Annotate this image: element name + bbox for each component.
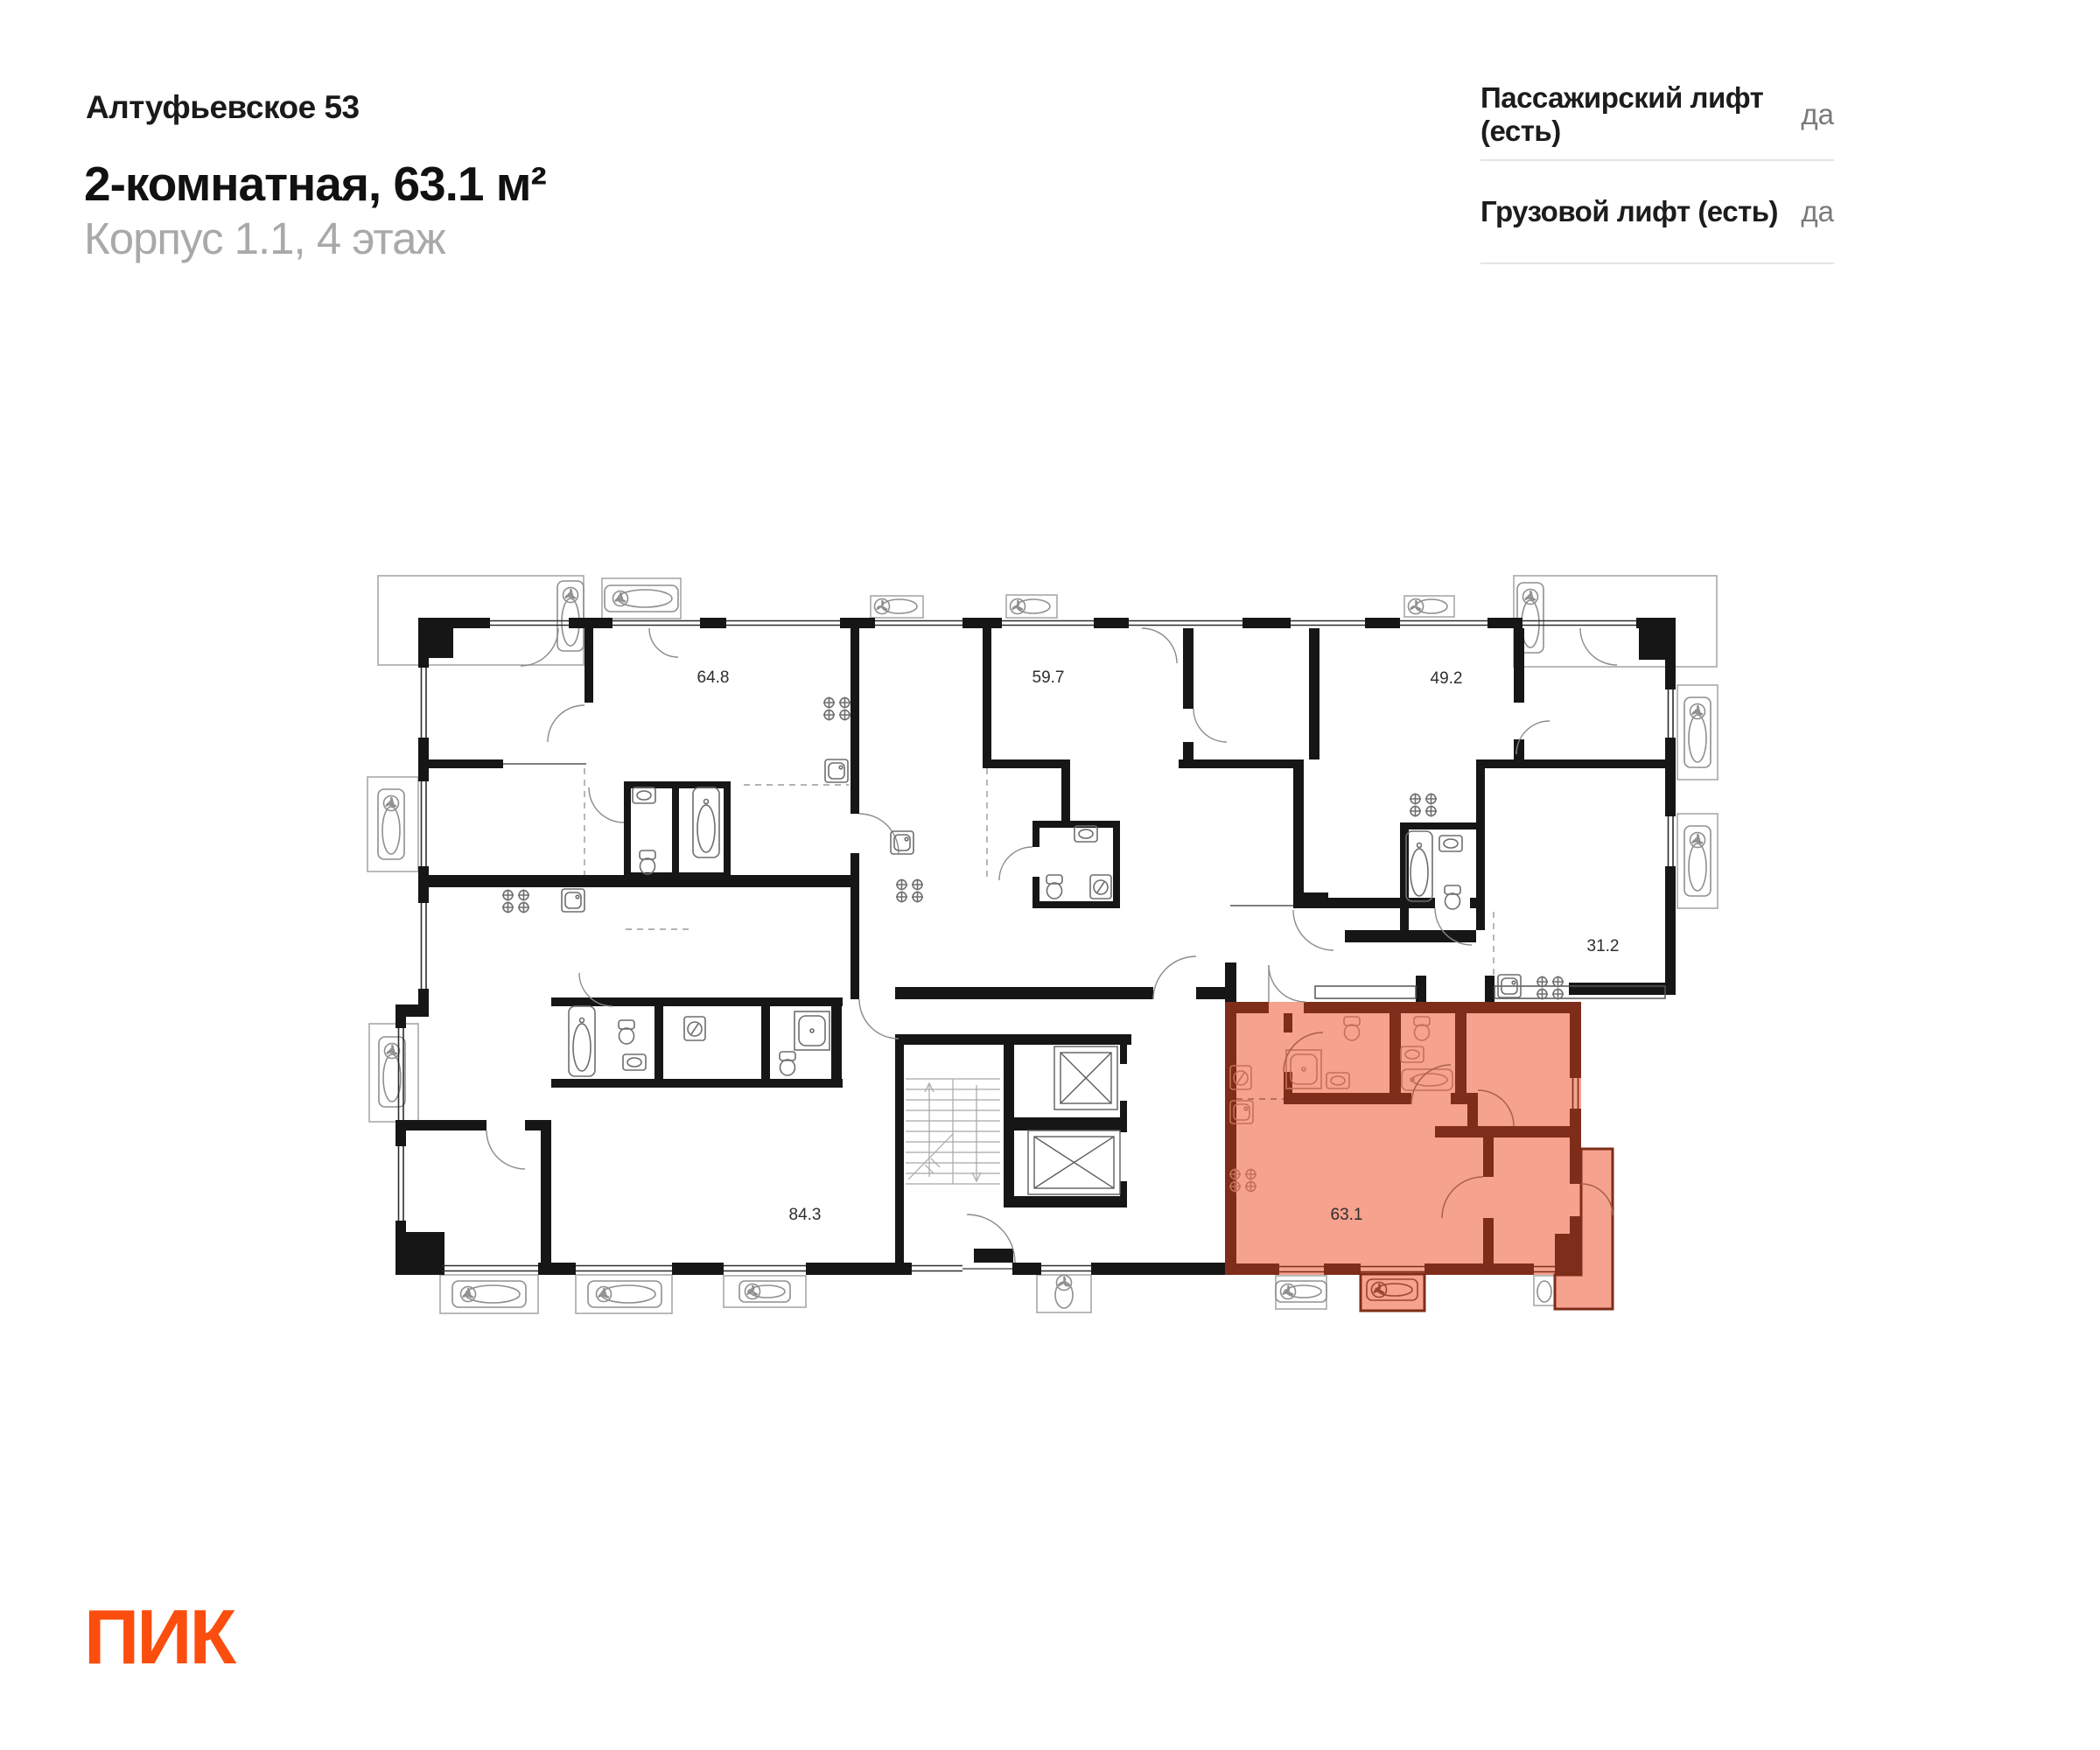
passenger-lift-label: Пассажирский лифт (есть)	[1480, 81, 1801, 148]
cargo-lift-label: Грузовой лифт (есть)	[1480, 195, 1778, 228]
apartment-subtitle: Корпус 1.1, 4 этаж	[84, 213, 445, 264]
elevator-shafts	[1004, 1034, 1131, 1207]
lift-info-panel: Пассажирский лифт (есть) да Грузовой лиф…	[1480, 70, 1834, 264]
passenger-lift-value: да	[1801, 98, 1834, 131]
unit-area-label-84-3: 84.3	[789, 1206, 822, 1224]
apartment-plan-page: { "header": { "project_name": "Алтуфьевс…	[0, 0, 2100, 1750]
highlighted-apartment	[1225, 965, 1613, 1311]
cargo-lift-row: Грузовой лифт (есть) да	[1480, 161, 1834, 264]
unit-area-label-49-2: 49.2	[1431, 669, 1463, 688]
unit-area-label-59-7: 59.7	[1032, 668, 1065, 687]
project-name: Алтуфьевское 53	[86, 89, 360, 126]
stairwell	[895, 1034, 1004, 1263]
pik-logo: ПИК	[84, 1592, 234, 1682]
unit-area-label-63-1: 63.1	[1331, 1206, 1363, 1224]
entrance-step	[974, 1249, 1013, 1263]
dashed-lines	[584, 768, 1494, 976]
apartment-title: 2-комнатная, 63.1 м²	[84, 156, 546, 212]
unit-area-label-64-8: 64.8	[697, 668, 730, 687]
cargo-lift-value: да	[1801, 195, 1834, 228]
passenger-lift-row: Пассажирский лифт (есть) да	[1480, 70, 1834, 161]
unit-area-label-31-2: 31.2	[1587, 937, 1620, 955]
floor-plan: 64.8 59.7 49.2 31.2 84.3 63.1	[341, 551, 1724, 1330]
